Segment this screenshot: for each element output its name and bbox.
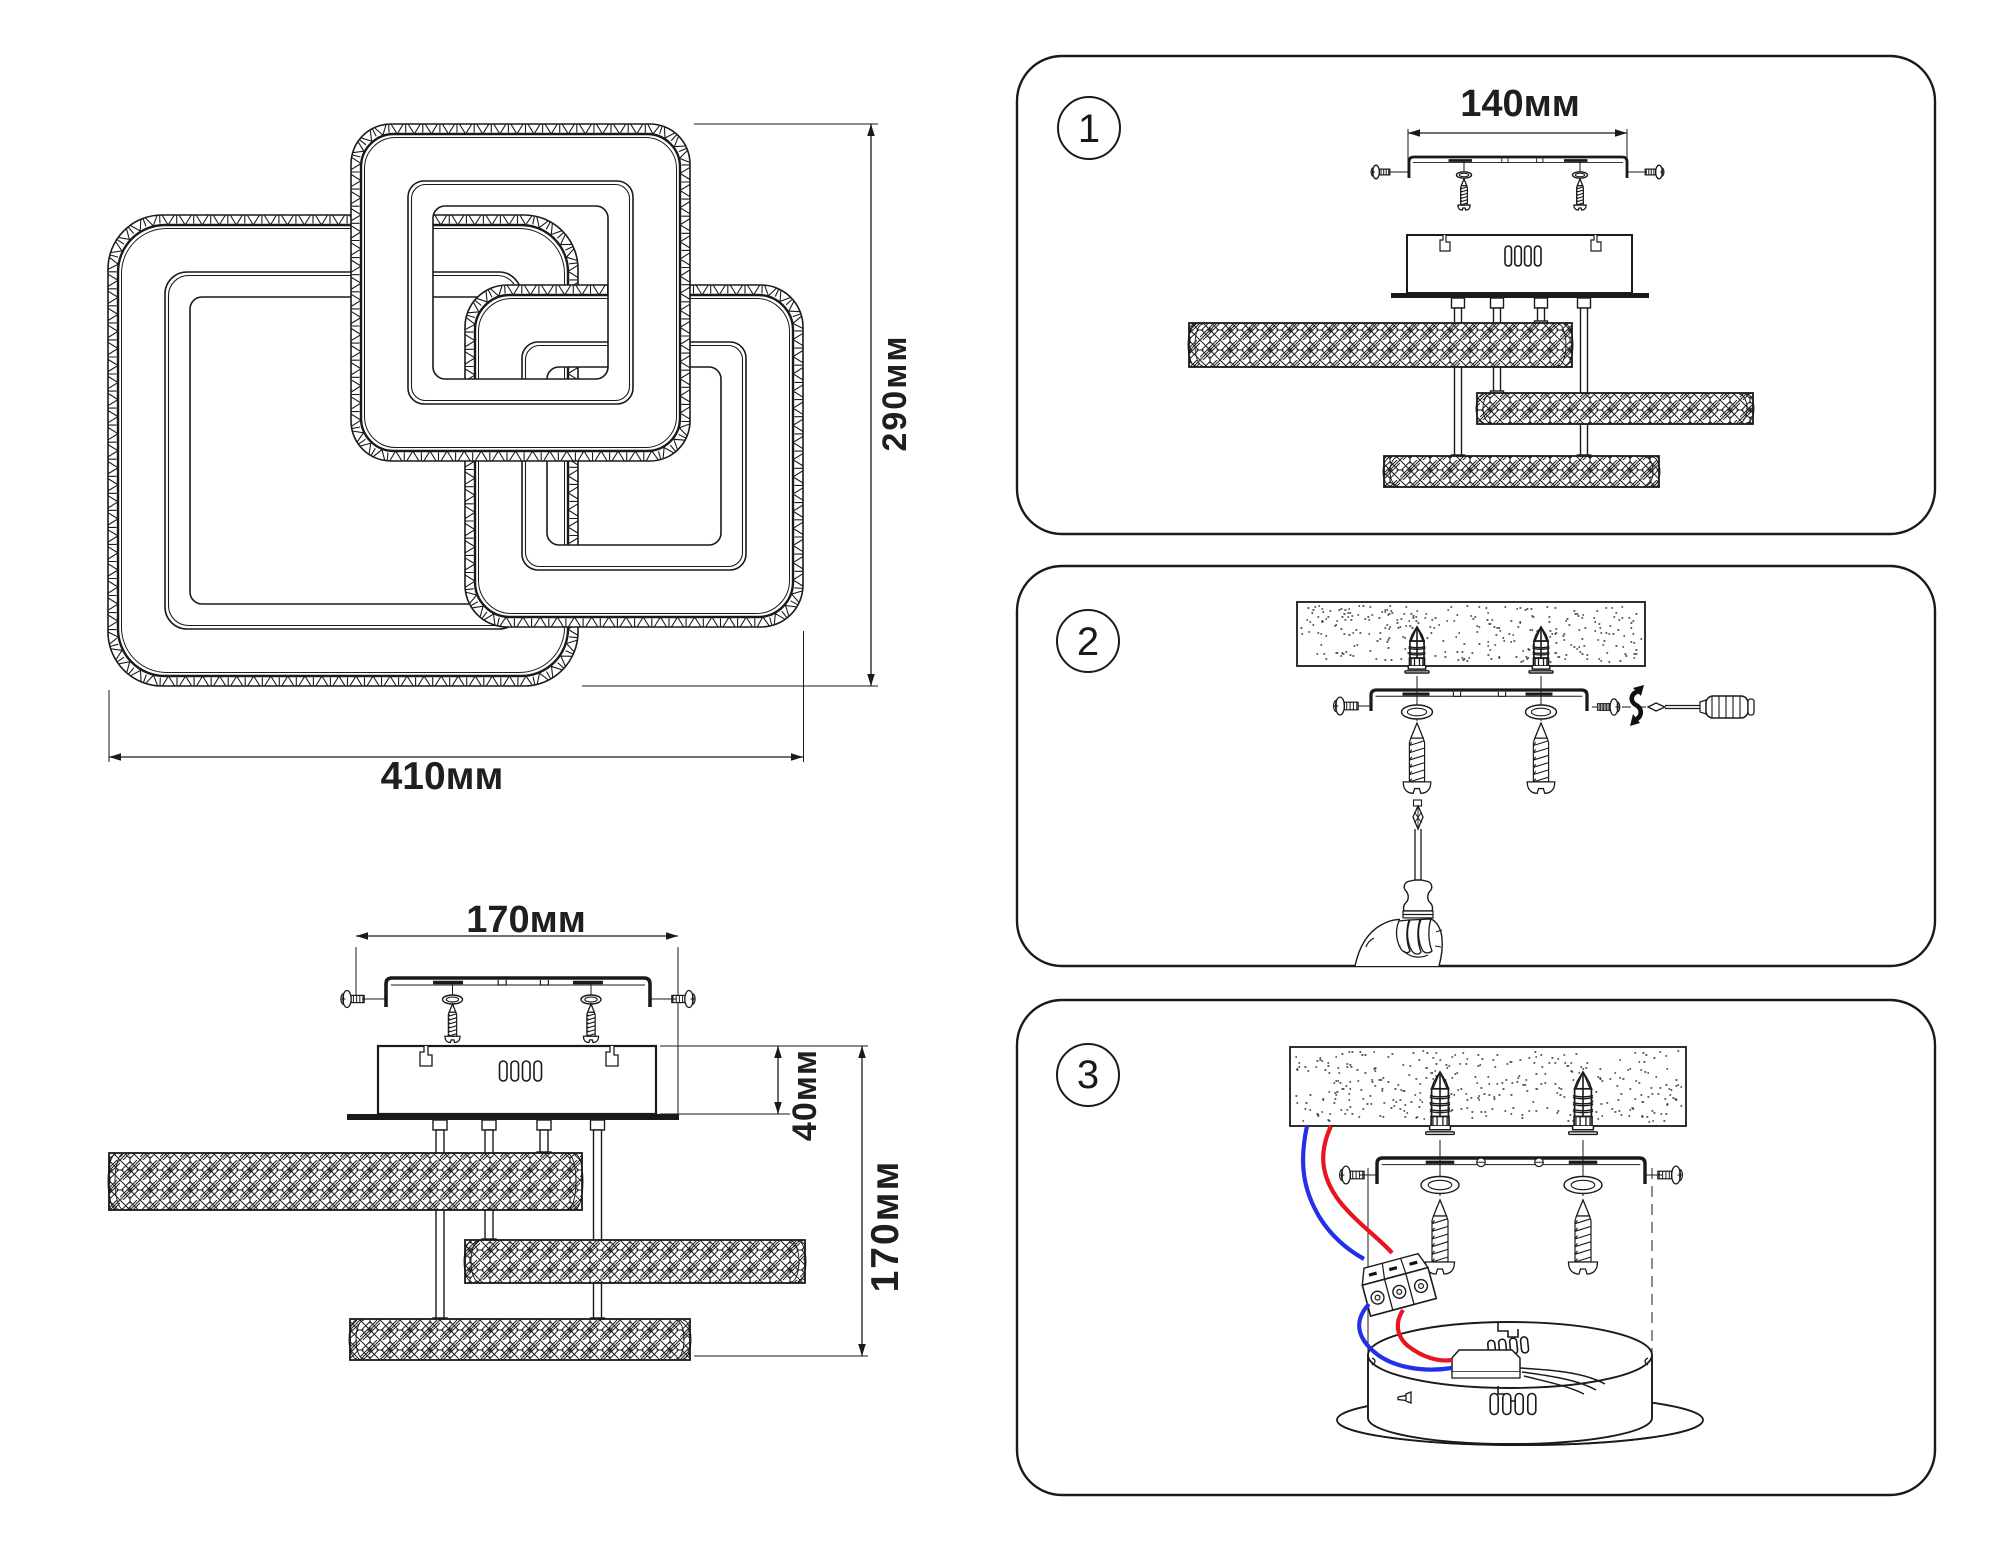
svg-text:2: 2 bbox=[1077, 620, 1099, 664]
svg-text:170мм: 170мм bbox=[466, 899, 586, 941]
svg-text:3: 3 bbox=[1077, 1053, 1099, 1097]
svg-text:170мм: 170мм bbox=[864, 1160, 907, 1293]
svg-text:140мм: 140мм bbox=[1460, 83, 1580, 125]
svg-text:40мм: 40мм bbox=[786, 1049, 824, 1141]
svg-text:290мм: 290мм bbox=[876, 334, 914, 451]
svg-text:1: 1 bbox=[1078, 107, 1100, 151]
svg-text:410мм: 410мм bbox=[381, 755, 504, 798]
